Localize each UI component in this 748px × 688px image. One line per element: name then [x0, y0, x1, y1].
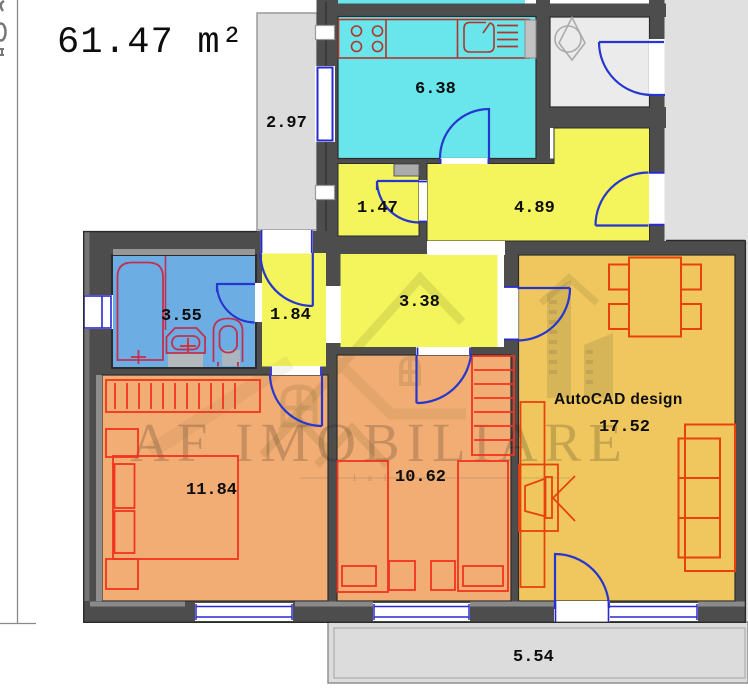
svg-text:1.47: 1.47 [357, 199, 398, 218]
svg-text:1.84: 1.84 [270, 306, 311, 325]
svg-text:5.54: 5.54 [513, 648, 554, 667]
svg-text:11.84: 11.84 [186, 481, 237, 500]
svg-text:AutoCAD design: AutoCAD design [554, 391, 683, 408]
svg-text:10.62: 10.62 [395, 468, 446, 487]
svg-text:61.47 m²: 61.47 m² [57, 22, 244, 64]
svg-text:3.55: 3.55 [161, 307, 202, 326]
svg-text:4.89: 4.89 [514, 199, 555, 218]
svg-text:2.97: 2.97 [266, 114, 307, 133]
svg-text:17.52: 17.52 [599, 418, 650, 437]
svg-text:1 a 1: 1 a 1 [352, 473, 391, 484]
svg-text:3.38: 3.38 [399, 293, 440, 312]
svg-text:6.38: 6.38 [415, 80, 456, 99]
